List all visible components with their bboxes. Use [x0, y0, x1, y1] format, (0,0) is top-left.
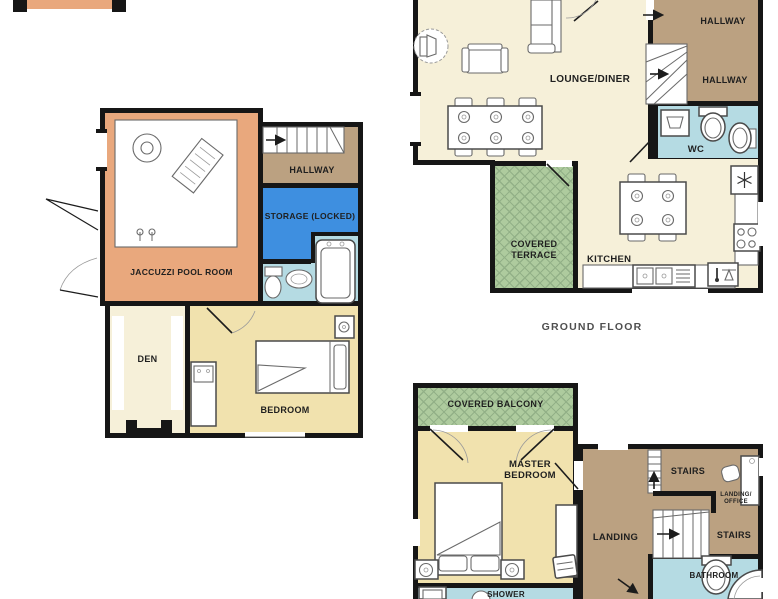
bedroom-lower-label: BEDROOM: [205, 405, 365, 416]
lounge-diner-label: LOUNGE/DINER: [520, 74, 660, 86]
shower-label: SHOWER: [466, 590, 546, 599]
double-bed: [435, 483, 502, 575]
kitchen-label: KITCHEN: [587, 254, 631, 265]
bathroom-label: BATHROOM: [674, 571, 754, 581]
furniture-overlay: [0, 0, 778, 599]
shower-tray: [419, 587, 446, 599]
window: [99, 133, 107, 167]
landing-office-label: LANDING/ OFFICE: [710, 492, 762, 505]
hallway-lower-label: HALLWAY: [262, 165, 362, 176]
single-bed: [256, 341, 349, 393]
wall-office: [653, 491, 716, 496]
landing-arrow-icon: [618, 579, 636, 592]
swimming-pool: [115, 120, 237, 247]
sink-icon: [286, 270, 312, 288]
wc-basin-icon: [729, 123, 756, 153]
floor-plan-canvas: JACCUZZI POOL ROOM HALLWAY STORAGE (LOCK…: [0, 0, 778, 599]
hob-icon: [734, 224, 760, 251]
armchair-icon: [462, 44, 508, 73]
balcony-doorway-left: [430, 425, 468, 432]
ground-floor-caption: GROUND FLOOR: [522, 321, 662, 333]
dining-table: [448, 98, 542, 156]
window: [759, 578, 764, 592]
window: [245, 432, 305, 437]
drawers-chest: [553, 555, 578, 579]
entry-door-top: [566, 0, 598, 21]
wc-toilet-icon: [699, 107, 727, 141]
dresser: [191, 362, 216, 426]
tv-icon: [414, 29, 448, 63]
hallway-mid-label: HALLWAY: [687, 75, 763, 86]
pool-room-label: JACCUZZI POOL ROOM: [100, 267, 263, 277]
master-bedroom-label: MASTER BEDROOM: [492, 459, 568, 482]
storage-label: STORAGE (LOCKED): [260, 211, 360, 221]
window: [632, 289, 708, 293]
bath: [316, 240, 355, 303]
covered-balcony-label: COVERED BALCONY: [413, 399, 578, 410]
stairs-mid-run: [653, 510, 709, 558]
hallway-top-label: HALLWAY: [685, 16, 761, 27]
bedroom-door: [207, 308, 255, 333]
wc-sink-icon: [661, 110, 689, 136]
window: [412, 519, 420, 546]
window: [759, 458, 764, 476]
landing-label: LANDING: [578, 532, 653, 543]
bedside-table-left: [415, 560, 438, 579]
terrace-door: [547, 164, 569, 186]
balcony-double-doors: [430, 429, 554, 463]
wc-label: WC: [666, 144, 726, 155]
stairs-mid-label: STAIRS: [705, 530, 763, 541]
balcony-doorway-right: [516, 425, 554, 432]
wc-door: [630, 141, 650, 162]
doorway: [646, 0, 654, 20]
pool-room-entry-door: [46, 199, 98, 297]
utensil-unit-icon: [708, 263, 738, 286]
fridge-icon: [731, 166, 758, 194]
stairs-top-label: STAIRS: [656, 466, 720, 477]
bedside-table-right: [501, 560, 524, 579]
window: [758, 202, 763, 246]
den-entrance-step: [126, 420, 172, 434]
stairs-lower: [263, 127, 344, 153]
window: [598, 444, 628, 450]
covered-terrace-label: COVERED TERRACE: [490, 239, 578, 261]
window: [412, 96, 420, 142]
kitchen-table: [620, 174, 686, 241]
den-label: DEN: [105, 354, 190, 365]
wall-unit: [335, 316, 354, 338]
kitchen-sink-icon: [633, 265, 695, 287]
sofa-icon: [528, 0, 561, 53]
toilet-icon: [265, 267, 282, 298]
